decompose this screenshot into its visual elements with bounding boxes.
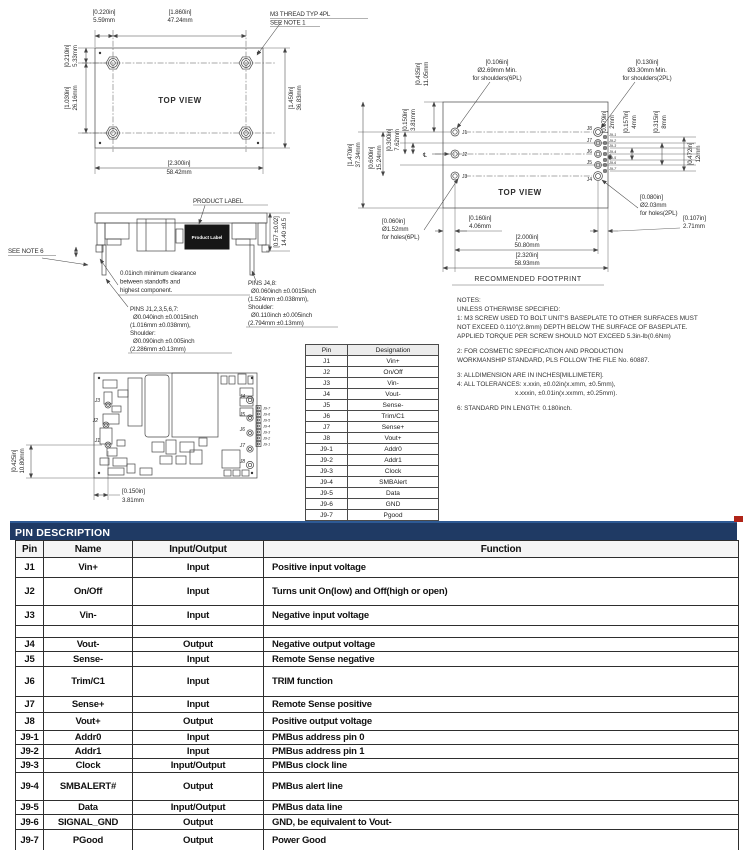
table-row: J9-4SMBAlert bbox=[306, 477, 439, 488]
table-row: J9-1Addr0 bbox=[306, 444, 439, 455]
designation-cell: Addr1 bbox=[348, 455, 439, 466]
pin-label-j6: J6 bbox=[587, 149, 593, 155]
dim-label: 2.71mm bbox=[683, 223, 705, 230]
pin-label-j7: J7 bbox=[239, 443, 246, 449]
pin-cell: J3 bbox=[306, 378, 348, 389]
pin-label-j2: J2 bbox=[92, 418, 99, 424]
dim-label: [0.435in] bbox=[415, 62, 422, 85]
io-cell: Input bbox=[133, 697, 264, 713]
pin-label-j9-1: J9-1 bbox=[608, 133, 616, 137]
pin-cell: J9-5 bbox=[306, 488, 348, 499]
table-row-empty bbox=[16, 626, 739, 638]
dim-label: 10.80mm bbox=[19, 448, 26, 473]
name-cell: Vin+ bbox=[44, 558, 133, 578]
callout-shoulders-6pl: for shoulders(6PL) bbox=[472, 75, 521, 82]
header-function: Function bbox=[264, 541, 739, 558]
pin-label-j8: J8 bbox=[587, 126, 593, 132]
designation-header-designation: Designation bbox=[348, 345, 439, 356]
pin-label-j5: J5 bbox=[587, 160, 593, 166]
dim-label: 58.42mm bbox=[166, 169, 191, 176]
pin-cell: J6 bbox=[16, 667, 44, 697]
dim-label: 15.24mm bbox=[376, 145, 383, 170]
pin-label-j2: J2 bbox=[462, 152, 468, 158]
pin-description-header-bar: PIN DESCRIPTION bbox=[10, 521, 737, 540]
pin-label-j4: J4 bbox=[239, 394, 246, 400]
pins-a-note: PINS J1,2,3,5,6,7: bbox=[130, 306, 179, 313]
designation-cell: Pgood bbox=[348, 510, 439, 521]
pin-cell: J9-3 bbox=[306, 466, 348, 477]
io-cell: Input bbox=[133, 745, 264, 759]
callout-see-note-1: SEE NOTE 1 bbox=[270, 20, 306, 27]
table-row: J7Sense+ bbox=[306, 422, 439, 433]
designation-cell: Trim/C1 bbox=[348, 411, 439, 422]
function-cell bbox=[264, 626, 739, 638]
designation-cell: Vin+ bbox=[348, 356, 439, 367]
note-line: 1: M3 SCREW USED TO BOLT UNIT'S BASEPLAT… bbox=[457, 314, 743, 323]
function-cell: PMBus clock line bbox=[264, 759, 739, 773]
dim-label: [2.300in] bbox=[168, 160, 191, 167]
table-row: J4Vout-OutputNegative output voltage bbox=[16, 638, 739, 652]
pin-cell bbox=[16, 626, 44, 638]
pins-b-note: (2.794mm ±0.13mm) bbox=[248, 320, 304, 327]
dim-label: [0.150in] bbox=[122, 488, 145, 495]
table-row: J3Vin- bbox=[306, 378, 439, 389]
io-cell: Input bbox=[133, 606, 264, 626]
footprint-caption: RECOMMENDED FOOTPRINT bbox=[474, 276, 581, 283]
function-cell: PMBus address pin 0 bbox=[264, 731, 739, 745]
name-cell: SMBALERT# bbox=[44, 773, 133, 801]
dim-label: 3.81mm bbox=[410, 109, 417, 131]
pins-b-note: (1.524mm ±0.038mm), bbox=[248, 296, 309, 303]
note-line: 4: ALL TOLERANCES: x.xxin, ±0.02in(x.xmm… bbox=[457, 380, 743, 389]
pin-label-j9-6: J9-6 bbox=[608, 161, 617, 165]
product-label: Product Label bbox=[192, 235, 223, 240]
pin-cell: J9-3 bbox=[16, 759, 44, 773]
pin-cell: J8 bbox=[306, 433, 348, 444]
designation-cell: SMBAlert bbox=[348, 477, 439, 488]
dim-label: [0.472in] bbox=[687, 142, 694, 165]
table-row: J1Vin+InputPositive input voltage bbox=[16, 558, 739, 578]
io-cell: Input/Output bbox=[133, 801, 264, 815]
pin-cell: J9-4 bbox=[16, 773, 44, 801]
dim-label: [1.450in] bbox=[288, 86, 295, 109]
table-row: J9-6SIGNAL_GNDOutputGND, be equivalent t… bbox=[16, 815, 739, 830]
datasheet-page: [0.220in] 5.59mm [1.860in] 47.24mm [0.21… bbox=[0, 0, 745, 850]
name-cell: Trim/C1 bbox=[44, 667, 133, 697]
io-cell: Input bbox=[133, 578, 264, 606]
callout-shoulders-6pl: [0.106in] bbox=[486, 59, 509, 66]
dim-label: [0.425in] bbox=[11, 449, 18, 472]
function-cell: Remote Sense positive bbox=[264, 697, 739, 713]
pin-designation-table: Pin Designation J1Vin+ J2On/Off J3Vin- J… bbox=[305, 344, 439, 521]
designation-header-pin: Pin bbox=[306, 345, 348, 356]
pin-label-j9-5: J9-5 bbox=[262, 419, 271, 423]
dim-label: 11.05mm bbox=[423, 62, 430, 87]
function-cell: PMBus alert line bbox=[264, 773, 739, 801]
pin-cell: J9-1 bbox=[306, 444, 348, 455]
table-row: J9-2Addr1 bbox=[306, 455, 439, 466]
pin-label-j9-4: J9-4 bbox=[608, 150, 616, 154]
pin-label-j9-2: J9-2 bbox=[262, 437, 270, 441]
note-line: WORKMANSHIP STANDARD, PLS FOLLOW THE FIL… bbox=[457, 356, 743, 365]
callout-holes-6pl: [0.060in] bbox=[382, 218, 405, 225]
io-cell: Input bbox=[133, 652, 264, 667]
table-row: J9-5DataInput/OutputPMBus data line bbox=[16, 801, 739, 815]
dim-label: 5.33mm bbox=[72, 45, 79, 67]
clearance-note: between standoffs and bbox=[120, 279, 181, 286]
pins-b-note: Shoulder: bbox=[248, 304, 274, 311]
note-line: NOT EXCEED 0.110"(2.8mm) DEPTH BELOW THE… bbox=[457, 323, 743, 332]
function-cell: Negative output voltage bbox=[264, 638, 739, 652]
pin-label-j5: J5 bbox=[239, 412, 246, 418]
table-row: J6Trim/C1InputTRIM function bbox=[16, 667, 739, 697]
pin-label-j9-2: J9-2 bbox=[608, 139, 616, 143]
callout-shoulders-2pl: Ø3.30mm Min. bbox=[627, 67, 667, 74]
pin-label-j9-1: J9-1 bbox=[262, 443, 270, 447]
dim-label: 4mm bbox=[631, 115, 638, 128]
designation-cell: Sense- bbox=[348, 400, 439, 411]
dim-label: [2.320in] bbox=[516, 252, 539, 259]
clearance-note: 0.01inch minimum clearance bbox=[120, 270, 197, 277]
pin-cell: J2 bbox=[306, 367, 348, 378]
table-row: J8Vout+OutputPositive output voltage bbox=[16, 713, 739, 731]
dim-label: 5.59mm bbox=[93, 17, 115, 24]
dim-label: [0.079in] bbox=[601, 110, 608, 133]
pin-cell: J9-7 bbox=[16, 830, 44, 850]
table-row: J9-3Clock bbox=[306, 466, 439, 477]
table-row: J2On/Off bbox=[306, 367, 439, 378]
dim-label: [0.315in] bbox=[653, 110, 660, 133]
side-view-drawing: PRODUCT LABEL Product Label SEE NOTE 6 [… bbox=[0, 195, 345, 353]
pin-label-j9-5: J9-5 bbox=[608, 156, 617, 160]
dim-label: 26.16mm bbox=[72, 85, 79, 110]
pin-label-j8: J8 bbox=[239, 459, 246, 465]
dim-label: [0.107in] bbox=[683, 215, 706, 222]
pins-a-note: Shoulder: bbox=[130, 330, 156, 337]
pins-a-note: (1.016mm ±0.038mm), bbox=[130, 322, 191, 329]
io-cell: Output bbox=[133, 830, 264, 850]
table-row: J9-3ClockInput/OutputPMBus clock line bbox=[16, 759, 739, 773]
table-row: J8Vout+ bbox=[306, 433, 439, 444]
pin-cell: J9-1 bbox=[16, 731, 44, 745]
callout-holes-2pl: [0.080in] bbox=[640, 194, 663, 201]
designation-cell: Data bbox=[348, 488, 439, 499]
note-line: APPLIED TORQUE PER SCREW SHOULD NOT EXCE… bbox=[457, 332, 743, 341]
function-cell: Remote Sense negative bbox=[264, 652, 739, 667]
pin-cell: J9-6 bbox=[306, 499, 348, 510]
table-row: J9-4SMBALERT#OutputPMBus alert line bbox=[16, 773, 739, 801]
name-cell: SIGNAL_GND bbox=[44, 815, 133, 830]
pin-cell: J1 bbox=[306, 356, 348, 367]
pin-cell: J5 bbox=[306, 400, 348, 411]
pin-label-j4: J4 bbox=[587, 177, 593, 183]
pin-cell: J9-6 bbox=[16, 815, 44, 830]
pin-cell: J4 bbox=[16, 638, 44, 652]
dim-label: [0.150in] bbox=[402, 108, 409, 131]
designation-cell: GND bbox=[348, 499, 439, 510]
pins-b-note: Ø0.110inch ±0.005inch bbox=[251, 312, 313, 319]
pins-a-note: Ø0.040inch ±0.0015inch bbox=[133, 314, 198, 321]
name-cell: Vout+ bbox=[44, 713, 133, 731]
note-line: 6: STANDARD PIN LENGTH: 0.180inch. bbox=[457, 404, 743, 413]
pin-cell: J9-2 bbox=[16, 745, 44, 759]
function-cell: Power Good bbox=[264, 830, 739, 850]
view-title: TOP VIEW bbox=[498, 188, 542, 197]
dim-label: 47.24mm bbox=[167, 17, 192, 24]
table-row: J2On/OffInputTurns unit On(low) and Off(… bbox=[16, 578, 739, 606]
footprint-drawing: [0.106in] Ø2.69mm Min. for shoulders(6PL… bbox=[340, 40, 745, 298]
dim-label: 37.34mm bbox=[355, 142, 362, 167]
dim-label: [0.220in] bbox=[93, 9, 116, 16]
io-cell: Output bbox=[133, 638, 264, 652]
name-cell: PGood bbox=[44, 830, 133, 850]
function-cell: Turns unit On(low) and Off(high or open) bbox=[264, 578, 739, 606]
dim-label: [0.300in] bbox=[386, 128, 393, 151]
centerline-symbol: ℄ bbox=[422, 153, 427, 159]
note-line: x.xxxin, ±0.01in(x.xxmm, ±0.25mm). bbox=[457, 389, 743, 398]
pin-label-j7: J7 bbox=[587, 138, 593, 144]
header-pin: Pin bbox=[16, 541, 44, 558]
function-cell: PMBus data line bbox=[264, 801, 739, 815]
dim-label: [1.860in] bbox=[169, 9, 192, 16]
table-row: J5Sense-InputRemote Sense negative bbox=[16, 652, 739, 667]
pin-label-j9-3: J9-3 bbox=[608, 144, 617, 148]
dim-label: [0.600in] bbox=[368, 146, 375, 169]
pin-cell: J9-7 bbox=[306, 510, 348, 521]
table-row: J9-7Pgood bbox=[306, 510, 439, 521]
designation-cell: Clock bbox=[348, 466, 439, 477]
pin-cell: J3 bbox=[16, 606, 44, 626]
clearance-note: highest component. bbox=[120, 287, 173, 294]
page-corner-mark bbox=[734, 516, 743, 522]
name-cell: Vin- bbox=[44, 606, 133, 626]
top-view-geometry bbox=[78, 19, 368, 175]
notes-block: NOTES: UNLESS OTHERWISE SPECIFIED: 1: M3… bbox=[457, 296, 743, 413]
dim-label: [2.000in] bbox=[516, 234, 539, 241]
pin-label-j9-4: J9-4 bbox=[262, 425, 270, 429]
io-cell: Output bbox=[133, 773, 264, 801]
pin-cell: J2 bbox=[16, 578, 44, 606]
table-row: J3Vin-InputNegative input voltage bbox=[16, 606, 739, 626]
table-row: J7Sense+InputRemote Sense positive bbox=[16, 697, 739, 713]
pin-label-j3: J3 bbox=[94, 398, 101, 404]
pin-cell: J6 bbox=[306, 411, 348, 422]
io-cell: Input/Output bbox=[133, 759, 264, 773]
name-cell: Clock bbox=[44, 759, 133, 773]
dim-label: [0.210in] bbox=[64, 44, 71, 67]
pin-label-j1: J1 bbox=[94, 438, 101, 444]
dim-label: [1.470in] bbox=[347, 143, 354, 166]
note-line: 2: FOR COSMETIC SPECIFICATION AND PRODUC… bbox=[457, 347, 743, 356]
io-cell: Output bbox=[133, 713, 264, 731]
designation-cell: Vout- bbox=[348, 389, 439, 400]
function-cell: Negative input voltage bbox=[264, 606, 739, 626]
pin-label-j6: J6 bbox=[239, 427, 246, 433]
note-line: UNLESS OTHERWISE SPECIFIED: bbox=[457, 305, 743, 314]
callout-see-note-6: SEE NOTE 6 bbox=[8, 248, 44, 255]
name-cell: Addr1 bbox=[44, 745, 133, 759]
function-cell: TRIM function bbox=[264, 667, 739, 697]
callout-shoulders-6pl: Ø2.69mm Min. bbox=[477, 67, 517, 74]
pins-b-note: PINS J4,8: bbox=[248, 280, 277, 287]
function-cell: Positive output voltage bbox=[264, 713, 739, 731]
name-cell: Addr0 bbox=[44, 731, 133, 745]
designation-cell: Sense+ bbox=[348, 422, 439, 433]
pcb-geometry bbox=[26, 373, 261, 500]
designation-cell: Addr0 bbox=[348, 444, 439, 455]
designation-cell: On/Off bbox=[348, 367, 439, 378]
dim-label: 36.83mm bbox=[296, 85, 303, 110]
callout-shoulders-2pl: for shoulders(2PL) bbox=[622, 75, 671, 82]
callout-holes-2pl: Ø2.03mm bbox=[640, 202, 666, 209]
bottom-view-drawing: [0.425in] 10.80mm [0.150in] 3.81mm J3 J2… bbox=[0, 348, 312, 526]
pin-cell: J5 bbox=[16, 652, 44, 667]
callout-holes-6pl: for holes(6PL) bbox=[382, 234, 420, 241]
callout-m3-thread: M3 THREAD TYP 4PL bbox=[270, 11, 331, 18]
function-cell: GND, be equivalent to Vout- bbox=[264, 815, 739, 830]
pin-cell: J8 bbox=[16, 713, 44, 731]
dim-label: 50.80mm bbox=[514, 242, 539, 249]
pin-label-j3: J3 bbox=[462, 174, 468, 180]
name-cell: Vout- bbox=[44, 638, 133, 652]
io-cell: Input bbox=[133, 558, 264, 578]
pin-label-j9-7: J9-7 bbox=[262, 407, 271, 411]
pin-cell: J7 bbox=[306, 422, 348, 433]
pin-cell: J9-2 bbox=[306, 455, 348, 466]
name-cell: On/Off bbox=[44, 578, 133, 606]
dim-label: [0.157in] bbox=[623, 110, 630, 133]
pin-cell: J9-5 bbox=[16, 801, 44, 815]
dim-label: 2mm bbox=[609, 115, 616, 128]
view-title: TOP VIEW bbox=[158, 96, 202, 105]
io-cell bbox=[133, 626, 264, 638]
pins-b-note: Ø0.060inch ±0.0015inch bbox=[251, 288, 316, 295]
header-name: Name bbox=[44, 541, 133, 558]
name-cell: Sense- bbox=[44, 652, 133, 667]
dim-label: 4.06mm bbox=[469, 223, 491, 230]
pin-cell: J1 bbox=[16, 558, 44, 578]
dim-label: 7.62mm bbox=[394, 129, 401, 151]
io-cell: Input bbox=[133, 731, 264, 745]
table-row: J5Sense- bbox=[306, 400, 439, 411]
callout-shoulders-2pl: [0.130in] bbox=[636, 59, 659, 66]
designation-cell: Vout+ bbox=[348, 433, 439, 444]
pins-a-note: Ø0.090inch ±0.005inch bbox=[133, 338, 195, 345]
note-line: NOTES: bbox=[457, 296, 743, 305]
io-cell: Output bbox=[133, 815, 264, 830]
callout-holes-6pl: Ø1.52mm bbox=[382, 226, 408, 233]
pin-cell: J9-4 bbox=[306, 477, 348, 488]
table-row: J9-7PGoodOutputPower Good bbox=[16, 830, 739, 850]
pin-label-j1: J1 bbox=[462, 130, 468, 136]
table-row: J6Trim/C1 bbox=[306, 411, 439, 422]
dim-label: 14.40 ±0.5 bbox=[281, 217, 288, 246]
dim-label: 58.93mm bbox=[514, 260, 539, 267]
pin-label-j9-6: J9-6 bbox=[262, 413, 271, 417]
dim-label: [1.030in] bbox=[64, 86, 71, 109]
top-view-drawing: [0.220in] 5.59mm [1.860in] 47.24mm [0.21… bbox=[20, 3, 380, 195]
header-io: Input/Output bbox=[133, 541, 264, 558]
name-cell: Data bbox=[44, 801, 133, 815]
callout-product-label: PRODUCT LABEL bbox=[193, 198, 244, 205]
pin-cell: J7 bbox=[16, 697, 44, 713]
pin-label-j9-3: J9-3 bbox=[262, 431, 271, 435]
dim-label: [0.57 ±0.02] bbox=[273, 216, 280, 248]
dim-label: 3.81mm bbox=[122, 497, 144, 504]
io-cell: Input bbox=[133, 667, 264, 697]
table-row: J9-2Addr1InputPMBus address pin 1 bbox=[16, 745, 739, 759]
table-row: J9-5Data bbox=[306, 488, 439, 499]
pin-cell: J4 bbox=[306, 389, 348, 400]
pin-description-table: Pin Name Input/Output Function J1Vin+Inp… bbox=[15, 540, 739, 850]
dim-label: 12mm bbox=[695, 146, 702, 163]
table-row: J9-6GND bbox=[306, 499, 439, 510]
designation-cell: Vin- bbox=[348, 378, 439, 389]
table-row: J1Vin+ bbox=[306, 356, 439, 367]
function-cell: Positive input voltage bbox=[264, 558, 739, 578]
dim-label: 8mm bbox=[661, 115, 668, 128]
callout-holes-2pl: for holes(2PL) bbox=[640, 210, 678, 217]
function-cell: PMBus address pin 1 bbox=[264, 745, 739, 759]
name-cell: Sense+ bbox=[44, 697, 133, 713]
name-cell bbox=[44, 626, 133, 638]
pin-label-j9-7: J9-7 bbox=[608, 167, 617, 171]
table-row: J9-1Addr0InputPMBus address pin 0 bbox=[16, 731, 739, 745]
note-line: 3: ALLDIMENSION ARE IN INCHES[MILLIMETER… bbox=[457, 371, 743, 380]
table-row: J4Vout- bbox=[306, 389, 439, 400]
dim-label: [0.160in] bbox=[469, 215, 492, 222]
